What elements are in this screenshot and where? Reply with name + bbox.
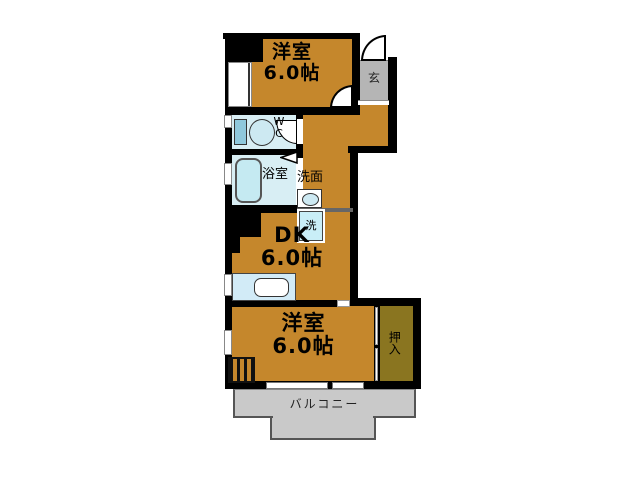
- label-washroom: 洗面: [295, 171, 325, 185]
- washbasin-bowl: [302, 193, 319, 206]
- balcony-sliding-door-left: [266, 382, 328, 389]
- floorplan-canvas: 洗 洋室 6.0帖 玄 W C 浴室 洗面 DK 6.0帖 洋室 6.0帖 押入…: [0, 0, 640, 480]
- wall-entrance-right: [388, 57, 397, 153]
- label-bathroom: 浴室: [258, 168, 292, 182]
- wall-bottomroom-top: [352, 298, 421, 306]
- label-balcony: バルコニー: [233, 398, 416, 411]
- label-closet: 押入: [387, 322, 400, 364]
- window-bottomroom-left: [224, 330, 232, 355]
- window-bath-left: [224, 163, 232, 185]
- label-toilet-c: C: [271, 128, 287, 140]
- balcony-lower: [270, 416, 376, 440]
- closet-sliding-door-upper: [375, 307, 378, 345]
- floor-corridor-under-entrance: [358, 103, 389, 148]
- toilet-tank: [234, 119, 247, 145]
- window-kitchen-left: [224, 274, 232, 296]
- label-dk: DK 6.0帖: [232, 224, 352, 270]
- label-western-bottom: 洋室 6.0帖: [232, 312, 375, 358]
- label-entrance: 玄: [362, 72, 386, 85]
- label-western-top-name: 洋室: [232, 42, 352, 63]
- entrance-step-threshold: [358, 100, 389, 105]
- window-toilet-left: [224, 115, 232, 128]
- kitchen-sink: [254, 278, 289, 297]
- label-western-top: 洋室 6.0帖: [232, 42, 352, 84]
- balcony-seam-patch: [273, 413, 373, 419]
- label-western-bottom-size: 6.0帖: [232, 335, 375, 358]
- wall-toproom-bottom: [225, 107, 360, 115]
- opening-dk-bedroom: [337, 300, 350, 307]
- balcony-sliding-door-right: [332, 382, 364, 389]
- label-dk-size: 6.0帖: [232, 247, 352, 270]
- label-toilet: W C: [271, 116, 287, 139]
- label-toilet-w: W: [271, 116, 287, 128]
- wall-dk-bottom: [225, 300, 337, 307]
- closet-sliding-door-lower: [375, 348, 378, 381]
- wall-bottomroom-right: [413, 300, 421, 389]
- washbasin: [297, 189, 322, 208]
- label-western-bottom-name: 洋室: [232, 312, 375, 335]
- kitchen-counter: [232, 273, 296, 301]
- label-western-top-size: 6.0帖: [232, 63, 352, 84]
- bathroom-door-marker: [280, 151, 298, 164]
- entrance-door-arc: [361, 35, 386, 61]
- hatched-pillar: [228, 357, 255, 383]
- opening-toilet-door: [297, 119, 303, 144]
- label-dk-name: DK: [232, 224, 352, 247]
